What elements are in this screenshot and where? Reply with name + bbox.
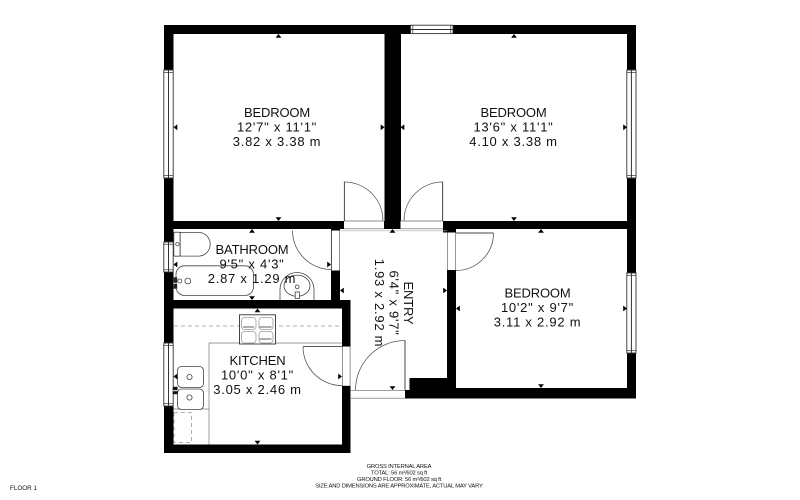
svg-text:ENTRY: ENTRY xyxy=(401,281,416,325)
svg-text:TOTAL: 56 m²/602 sq ft: TOTAL: 56 m²/602 sq ft xyxy=(371,470,428,476)
svg-text:3.82 x 3.38 m: 3.82 x 3.38 m xyxy=(233,134,322,149)
svg-text:BEDROOM: BEDROOM xyxy=(480,105,546,120)
svg-text:BEDROOM: BEDROOM xyxy=(244,105,310,120)
svg-text:4.10 x 3.38 m: 4.10 x 3.38 m xyxy=(469,134,558,149)
svg-text:2.87 x 1.29 m: 2.87 x 1.29 m xyxy=(208,271,297,286)
svg-text:KITCHEN: KITCHEN xyxy=(229,353,285,368)
svg-text:GROUND FLOOR: 56 m²/602 sq ft: GROUND FLOOR: 56 m²/602 sq ft xyxy=(357,477,442,483)
svg-text:1.93 x 2.92 m: 1.93 x 2.92 m xyxy=(372,259,387,348)
svg-text:SIZE AND DIMENSIONS ARE APPROX: SIZE AND DIMENSIONS ARE APPROXIMATE, ACT… xyxy=(315,484,483,490)
svg-text:10'2" x 9'7": 10'2" x 9'7" xyxy=(501,300,574,315)
svg-text:BATHROOM: BATHROOM xyxy=(216,242,289,257)
svg-text:9'5" x 4'3": 9'5" x 4'3" xyxy=(219,257,284,272)
svg-text:3.11 x 2.92 m: 3.11 x 2.92 m xyxy=(494,315,582,330)
svg-text:3.05 x 2.46 m: 3.05 x 2.46 m xyxy=(213,382,302,397)
svg-text:FLOOR 1: FLOOR 1 xyxy=(10,485,37,492)
svg-text:13'6" x 11'1": 13'6" x 11'1" xyxy=(473,120,553,135)
svg-text:10'0" x 8'1": 10'0" x 8'1" xyxy=(221,368,294,383)
svg-text:BEDROOM: BEDROOM xyxy=(504,286,570,301)
svg-text:GROSS INTERNAL AREA: GROSS INTERNAL AREA xyxy=(367,464,432,470)
svg-text:6'4" x 9'7": 6'4" x 9'7" xyxy=(386,270,401,335)
svg-text:12'7" x 11'1": 12'7" x 11'1" xyxy=(237,120,317,135)
